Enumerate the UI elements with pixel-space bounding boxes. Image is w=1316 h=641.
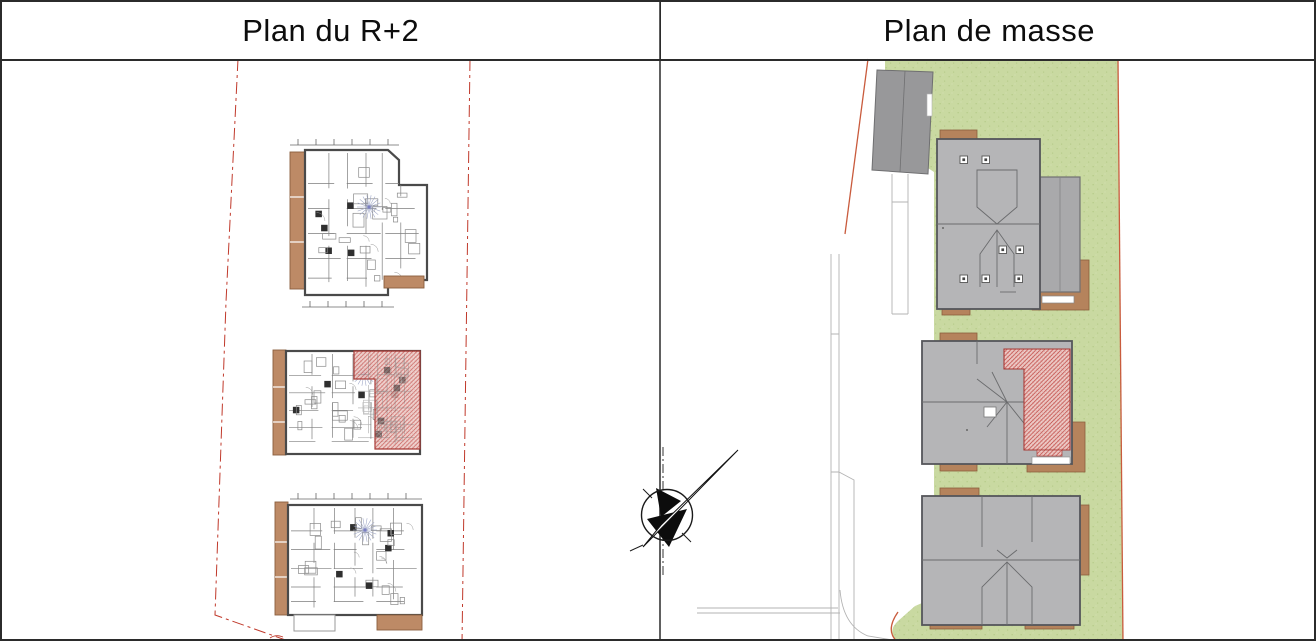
site-plan: [697, 59, 1123, 641]
balcony: [377, 615, 422, 630]
floor-plan-title: Plan du R+2: [2, 2, 661, 59]
chimney-icon: [1015, 275, 1023, 283]
site-plan-title: Plan de masse: [661, 2, 1316, 59]
architectural-drawing: [2, 2, 1316, 641]
chimney-icon: [982, 275, 990, 283]
floor-plan: [215, 59, 470, 641]
ground-terrace-outline: [294, 615, 335, 631]
site-building-3: [922, 488, 1089, 629]
north-arrow-icon: [630, 447, 738, 577]
title-row: Plan du R+2 Plan de masse: [2, 2, 1316, 61]
neighbor-parcels: [697, 174, 908, 641]
terrace: [1080, 505, 1089, 575]
chimney-icon: [1016, 246, 1024, 254]
chimney-icon: [982, 156, 990, 164]
dimension-ticks: [302, 301, 394, 307]
roof-main: [922, 496, 1080, 625]
chimney-icon: [960, 275, 968, 283]
floor-plan-building-1: [290, 139, 427, 307]
balcony: [275, 502, 288, 615]
floor-plan-building-2: [273, 350, 420, 455]
dimension-ticks: [290, 493, 422, 499]
chimney-icon: [960, 156, 968, 164]
site-building-2: [922, 333, 1085, 472]
floor-plan-building-3: [275, 493, 422, 631]
dimension-ticks: [290, 139, 399, 145]
balcony: [384, 276, 424, 288]
balcony: [290, 152, 305, 289]
plan-sheet: Plan du R+2 Plan de masse: [0, 0, 1316, 641]
balcony: [273, 350, 286, 455]
existing-building: [872, 70, 933, 174]
chimney-icon: [999, 246, 1007, 254]
terrace: [940, 488, 979, 496]
